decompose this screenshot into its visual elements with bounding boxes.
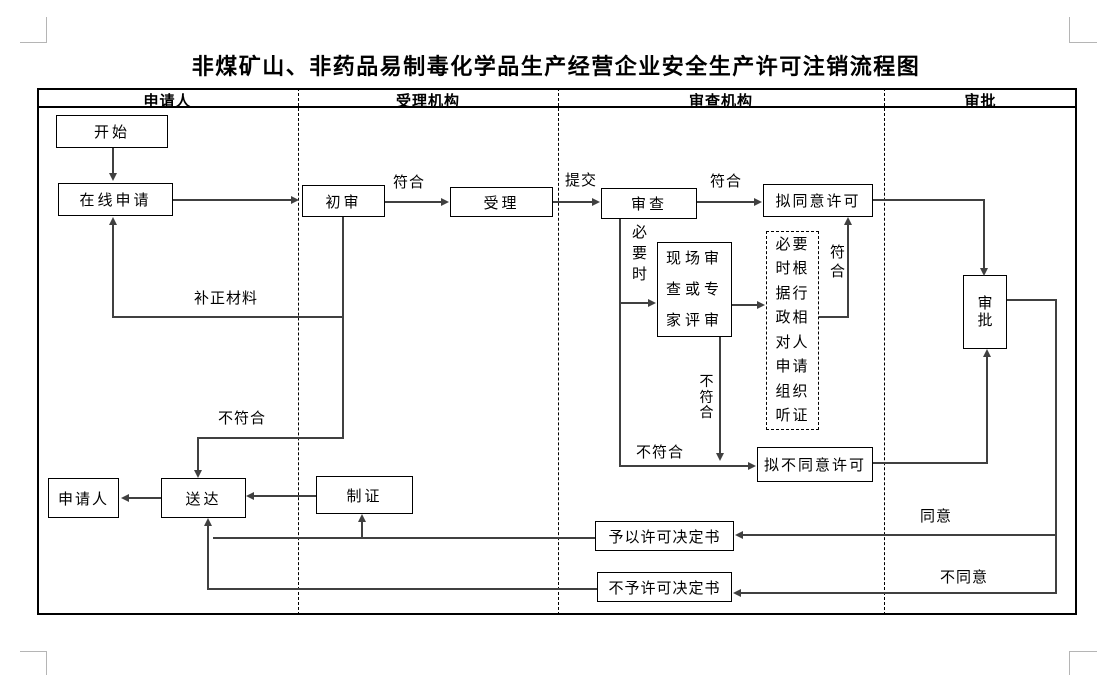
connector-line bbox=[621, 302, 650, 304]
arrowhead bbox=[592, 198, 600, 206]
corner-mark-top-right bbox=[1069, 42, 1097, 43]
arrowhead bbox=[204, 518, 212, 526]
node-review: 审查 bbox=[601, 188, 697, 219]
connector-line bbox=[742, 534, 1056, 536]
edge-label-conform-initial: 符合 bbox=[393, 171, 425, 192]
connector-line bbox=[112, 148, 114, 174]
corner-mark-top-right bbox=[1069, 17, 1070, 43]
corner-mark-bottom-right bbox=[1069, 651, 1097, 652]
edge-label-nonconform-onsite: 不符合 bbox=[698, 374, 715, 421]
connector-line bbox=[197, 437, 344, 439]
edge-label-when-necessary: 必要时 bbox=[631, 222, 648, 285]
connector-line bbox=[873, 199, 985, 201]
arrowhead bbox=[716, 453, 724, 461]
corner-mark-top-left bbox=[20, 42, 47, 43]
node-certificate: 制证 bbox=[316, 476, 413, 514]
arrowhead bbox=[844, 217, 852, 225]
node-hearing-label: 必要时根据行政相对人申请组织听证 bbox=[773, 233, 812, 429]
corner-mark-bottom-left bbox=[20, 651, 47, 652]
node-hearing: 必要时根据行政相对人申请组织听证 bbox=[766, 231, 819, 430]
connector-line bbox=[361, 521, 363, 538]
connector-line bbox=[619, 219, 621, 467]
connector-line bbox=[847, 224, 849, 318]
arrowhead bbox=[648, 299, 656, 307]
connector-line bbox=[112, 224, 114, 316]
connector-line bbox=[385, 201, 443, 203]
arrowhead bbox=[109, 173, 117, 181]
connector-line bbox=[1055, 299, 1057, 594]
node-applicant: 申请人 bbox=[48, 478, 119, 518]
connector-line bbox=[253, 495, 316, 497]
connector-line bbox=[173, 199, 291, 201]
connector-line bbox=[986, 356, 988, 464]
connector-line bbox=[207, 525, 209, 589]
arrowhead bbox=[733, 589, 741, 597]
corner-mark-bottom-right bbox=[1069, 651, 1070, 675]
edge-label-nonconform-initial: 不符合 bbox=[218, 407, 266, 428]
connector-line bbox=[740, 592, 1056, 594]
connector-line bbox=[213, 537, 595, 539]
lane-header-review-agency: 审查机构 bbox=[558, 90, 884, 111]
node-start: 开始 bbox=[56, 115, 168, 148]
node-propose-approval: 拟同意许可 bbox=[763, 184, 873, 217]
edge-label-supplement-materials: 补正材料 bbox=[194, 287, 258, 308]
node-onsite-review-label: 现场审查或专家评审 bbox=[665, 243, 724, 336]
arrowhead bbox=[441, 198, 449, 206]
page-title: 非煤矿山、非药品易制毒化学品生产经营企业安全生产许可注销流程图 bbox=[0, 49, 1112, 81]
connector-line bbox=[1007, 299, 1056, 301]
flowchart-page: 非煤矿山、非药品易制毒化学品生产经营企业安全生产许可注销流程图 申请人 受理机构… bbox=[0, 0, 1112, 675]
connector-line bbox=[873, 462, 988, 464]
node-deny-decision: 不予许可决定书 bbox=[597, 572, 732, 602]
edge-label-submit: 提交 bbox=[565, 169, 597, 190]
connector-line bbox=[983, 199, 985, 269]
lane-divider bbox=[298, 88, 299, 615]
connector-line bbox=[197, 437, 199, 471]
node-propose-disapproval: 拟不同意许可 bbox=[757, 447, 873, 482]
edge-label-disagree: 不同意 bbox=[940, 566, 988, 587]
arrowhead bbox=[980, 268, 988, 276]
connector-line bbox=[732, 304, 758, 306]
node-initial-review: 初审 bbox=[302, 185, 385, 217]
arrowhead bbox=[754, 198, 762, 206]
connector-line bbox=[553, 201, 594, 203]
arrowhead bbox=[983, 349, 991, 357]
node-delivery: 送达 bbox=[161, 478, 246, 518]
arrowhead bbox=[748, 462, 756, 470]
lane-header-approval: 审批 bbox=[884, 90, 1077, 111]
arrowhead bbox=[246, 492, 254, 500]
node-acceptance: 受理 bbox=[450, 187, 553, 217]
edge-label-agree: 同意 bbox=[920, 505, 952, 526]
connector-line bbox=[112, 316, 344, 318]
node-onsite-review: 现场审查或专家评审 bbox=[657, 242, 732, 337]
lane-header-applicant: 申请人 bbox=[37, 90, 298, 111]
edge-label-conform-hearing: 符合 bbox=[829, 243, 846, 281]
arrowhead bbox=[121, 494, 129, 502]
arrowhead bbox=[194, 470, 202, 478]
arrowhead bbox=[291, 196, 299, 204]
arrowhead bbox=[757, 301, 765, 309]
corner-mark-bottom-left bbox=[46, 651, 47, 675]
arrowhead bbox=[358, 514, 366, 522]
connector-line bbox=[697, 201, 756, 203]
connector-line bbox=[619, 465, 749, 467]
node-online-application: 在线申请 bbox=[58, 183, 173, 216]
node-approval: 审批 bbox=[963, 275, 1007, 349]
node-grant-decision: 予以许可决定书 bbox=[595, 521, 734, 551]
lane-divider bbox=[558, 88, 559, 615]
connector-line bbox=[342, 217, 344, 439]
connector-line bbox=[207, 588, 597, 590]
connector-line bbox=[128, 497, 161, 499]
connector-line bbox=[819, 316, 849, 318]
arrowhead bbox=[109, 217, 117, 225]
edge-label-conform-review: 符合 bbox=[710, 170, 742, 191]
corner-mark-top-left bbox=[46, 17, 47, 43]
arrowhead bbox=[735, 531, 743, 539]
edge-label-nonconform-review: 不符合 bbox=[636, 441, 684, 462]
lane-header-acceptance-agency: 受理机构 bbox=[298, 90, 558, 111]
connector-line bbox=[719, 337, 721, 454]
node-approval-label: 审批 bbox=[977, 295, 993, 329]
